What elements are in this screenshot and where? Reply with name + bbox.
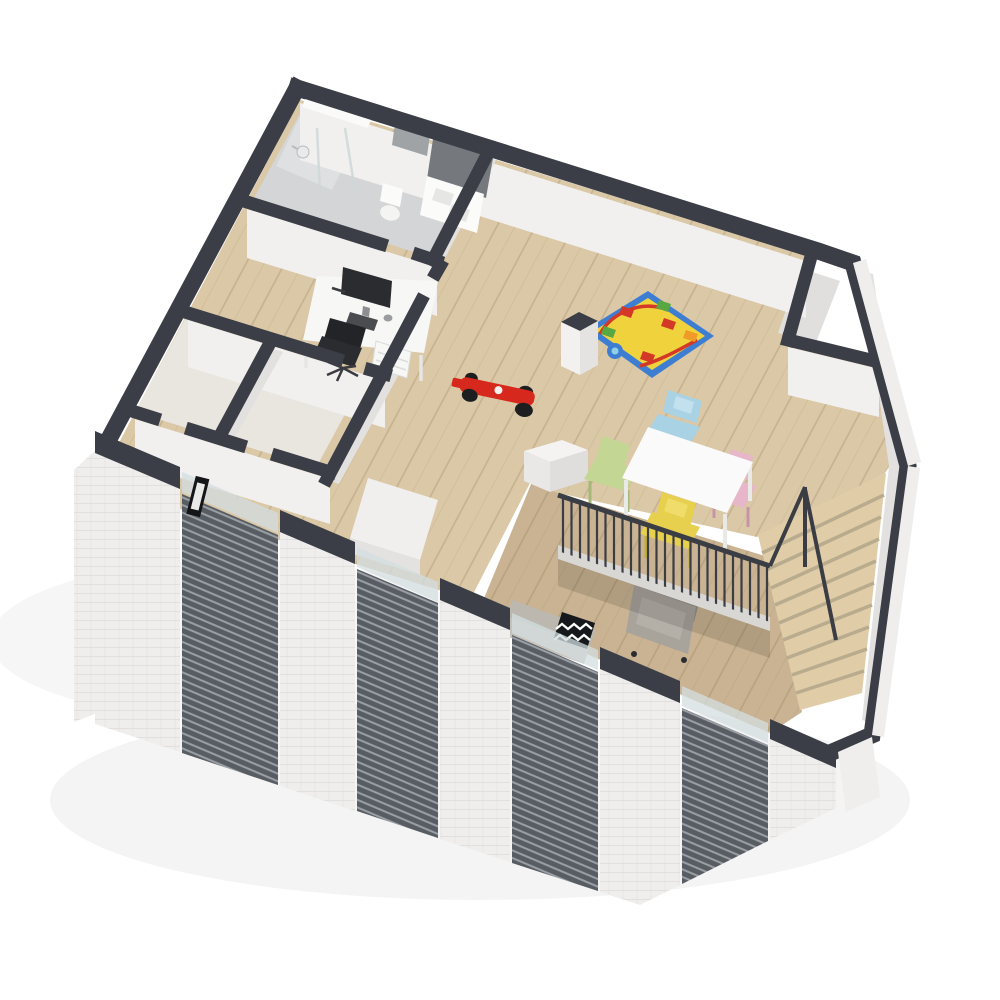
facade-pier (280, 510, 355, 811)
louver-panel (182, 494, 278, 785)
floorplan-render (0, 0, 1000, 1000)
facade-pier (440, 578, 510, 862)
facade-pier (600, 647, 680, 905)
mouse (384, 315, 393, 322)
shower-head-icon (297, 146, 309, 158)
column (561, 312, 598, 375)
louver-panel (357, 569, 438, 838)
louver-panel (512, 635, 598, 891)
facade-pier (95, 431, 180, 752)
